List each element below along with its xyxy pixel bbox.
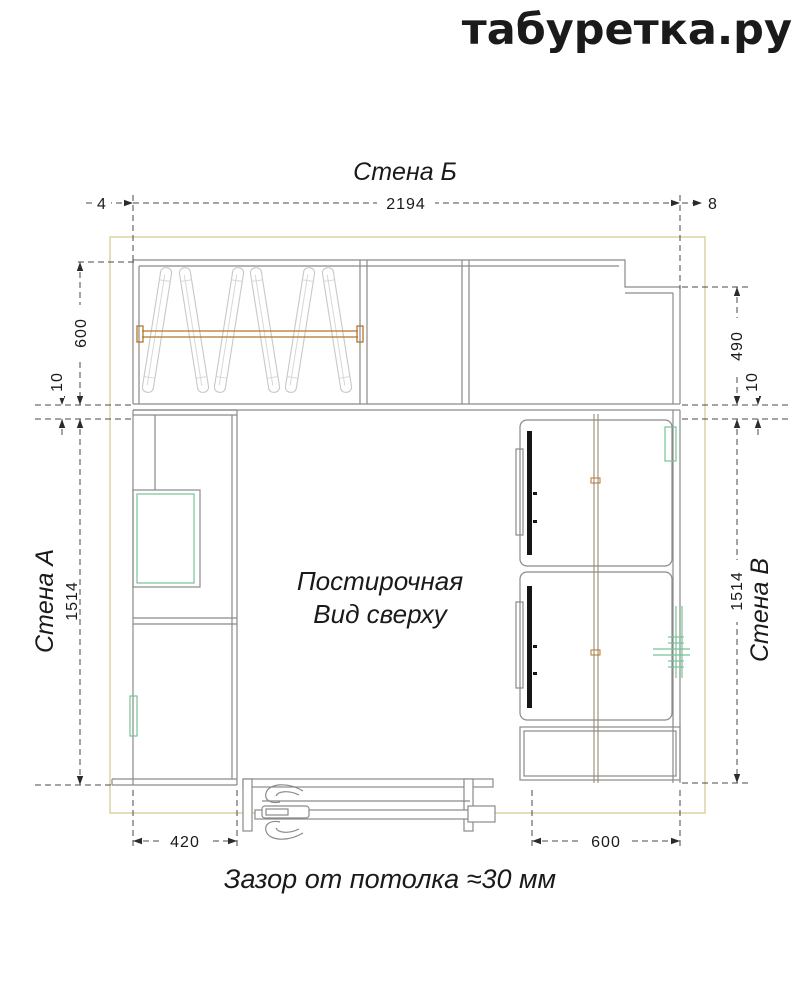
floor-plan: табуретка.ру — [0, 0, 800, 1000]
right-appliance-column — [516, 410, 690, 783]
dim-left-gap: 10 — [49, 372, 66, 392]
left-cabinet-column — [112, 410, 237, 785]
dim-top-width: 2194 — [386, 196, 426, 213]
hanger-icon — [214, 267, 245, 393]
shelf-box — [133, 490, 200, 587]
view-subtitle: Вид сверху — [313, 599, 448, 629]
door-handle-icon — [262, 785, 309, 839]
dim-bottom-left-width: 420 — [170, 834, 200, 851]
dim-right-depth: 490 — [729, 331, 746, 361]
hanging-rod — [137, 326, 363, 342]
dim-gap-right-top: 8 — [708, 196, 718, 213]
wardrobe-hangers — [137, 267, 363, 393]
hanger-icon — [285, 267, 316, 393]
wall-b-label: Стена Б — [353, 158, 457, 186]
shelf-basket — [137, 494, 194, 583]
dim-bottom-right-width: 600 — [591, 834, 621, 851]
hanger-icon — [250, 267, 281, 393]
dim-right-height: 1514 — [729, 571, 746, 611]
door-assembly — [243, 779, 495, 839]
hanger-icon — [179, 267, 210, 393]
wall-v-label: Стена В — [746, 558, 774, 662]
ceiling-gap-note: Зазор от потолка ≈30 мм — [224, 864, 556, 894]
room-title: Постирочная — [297, 566, 463, 596]
washer-top — [516, 420, 676, 566]
dim-left-height: 1514 — [64, 581, 81, 621]
drawing-canvas: табуретка.ру — [0, 0, 800, 1000]
hanger-icon — [142, 267, 173, 393]
hinge-fitting-icon — [665, 427, 676, 461]
dim-left-depth: 600 — [73, 318, 90, 348]
logo: табуретка.ру — [462, 5, 792, 55]
dimension-lines — [35, 195, 790, 850]
hanger-icon — [322, 267, 353, 393]
dim-gap-left-top: 4 — [97, 196, 107, 213]
drawer-box — [520, 727, 680, 780]
dim-right-gap: 10 — [744, 372, 761, 392]
wall-a-label: Стена А — [31, 549, 59, 653]
